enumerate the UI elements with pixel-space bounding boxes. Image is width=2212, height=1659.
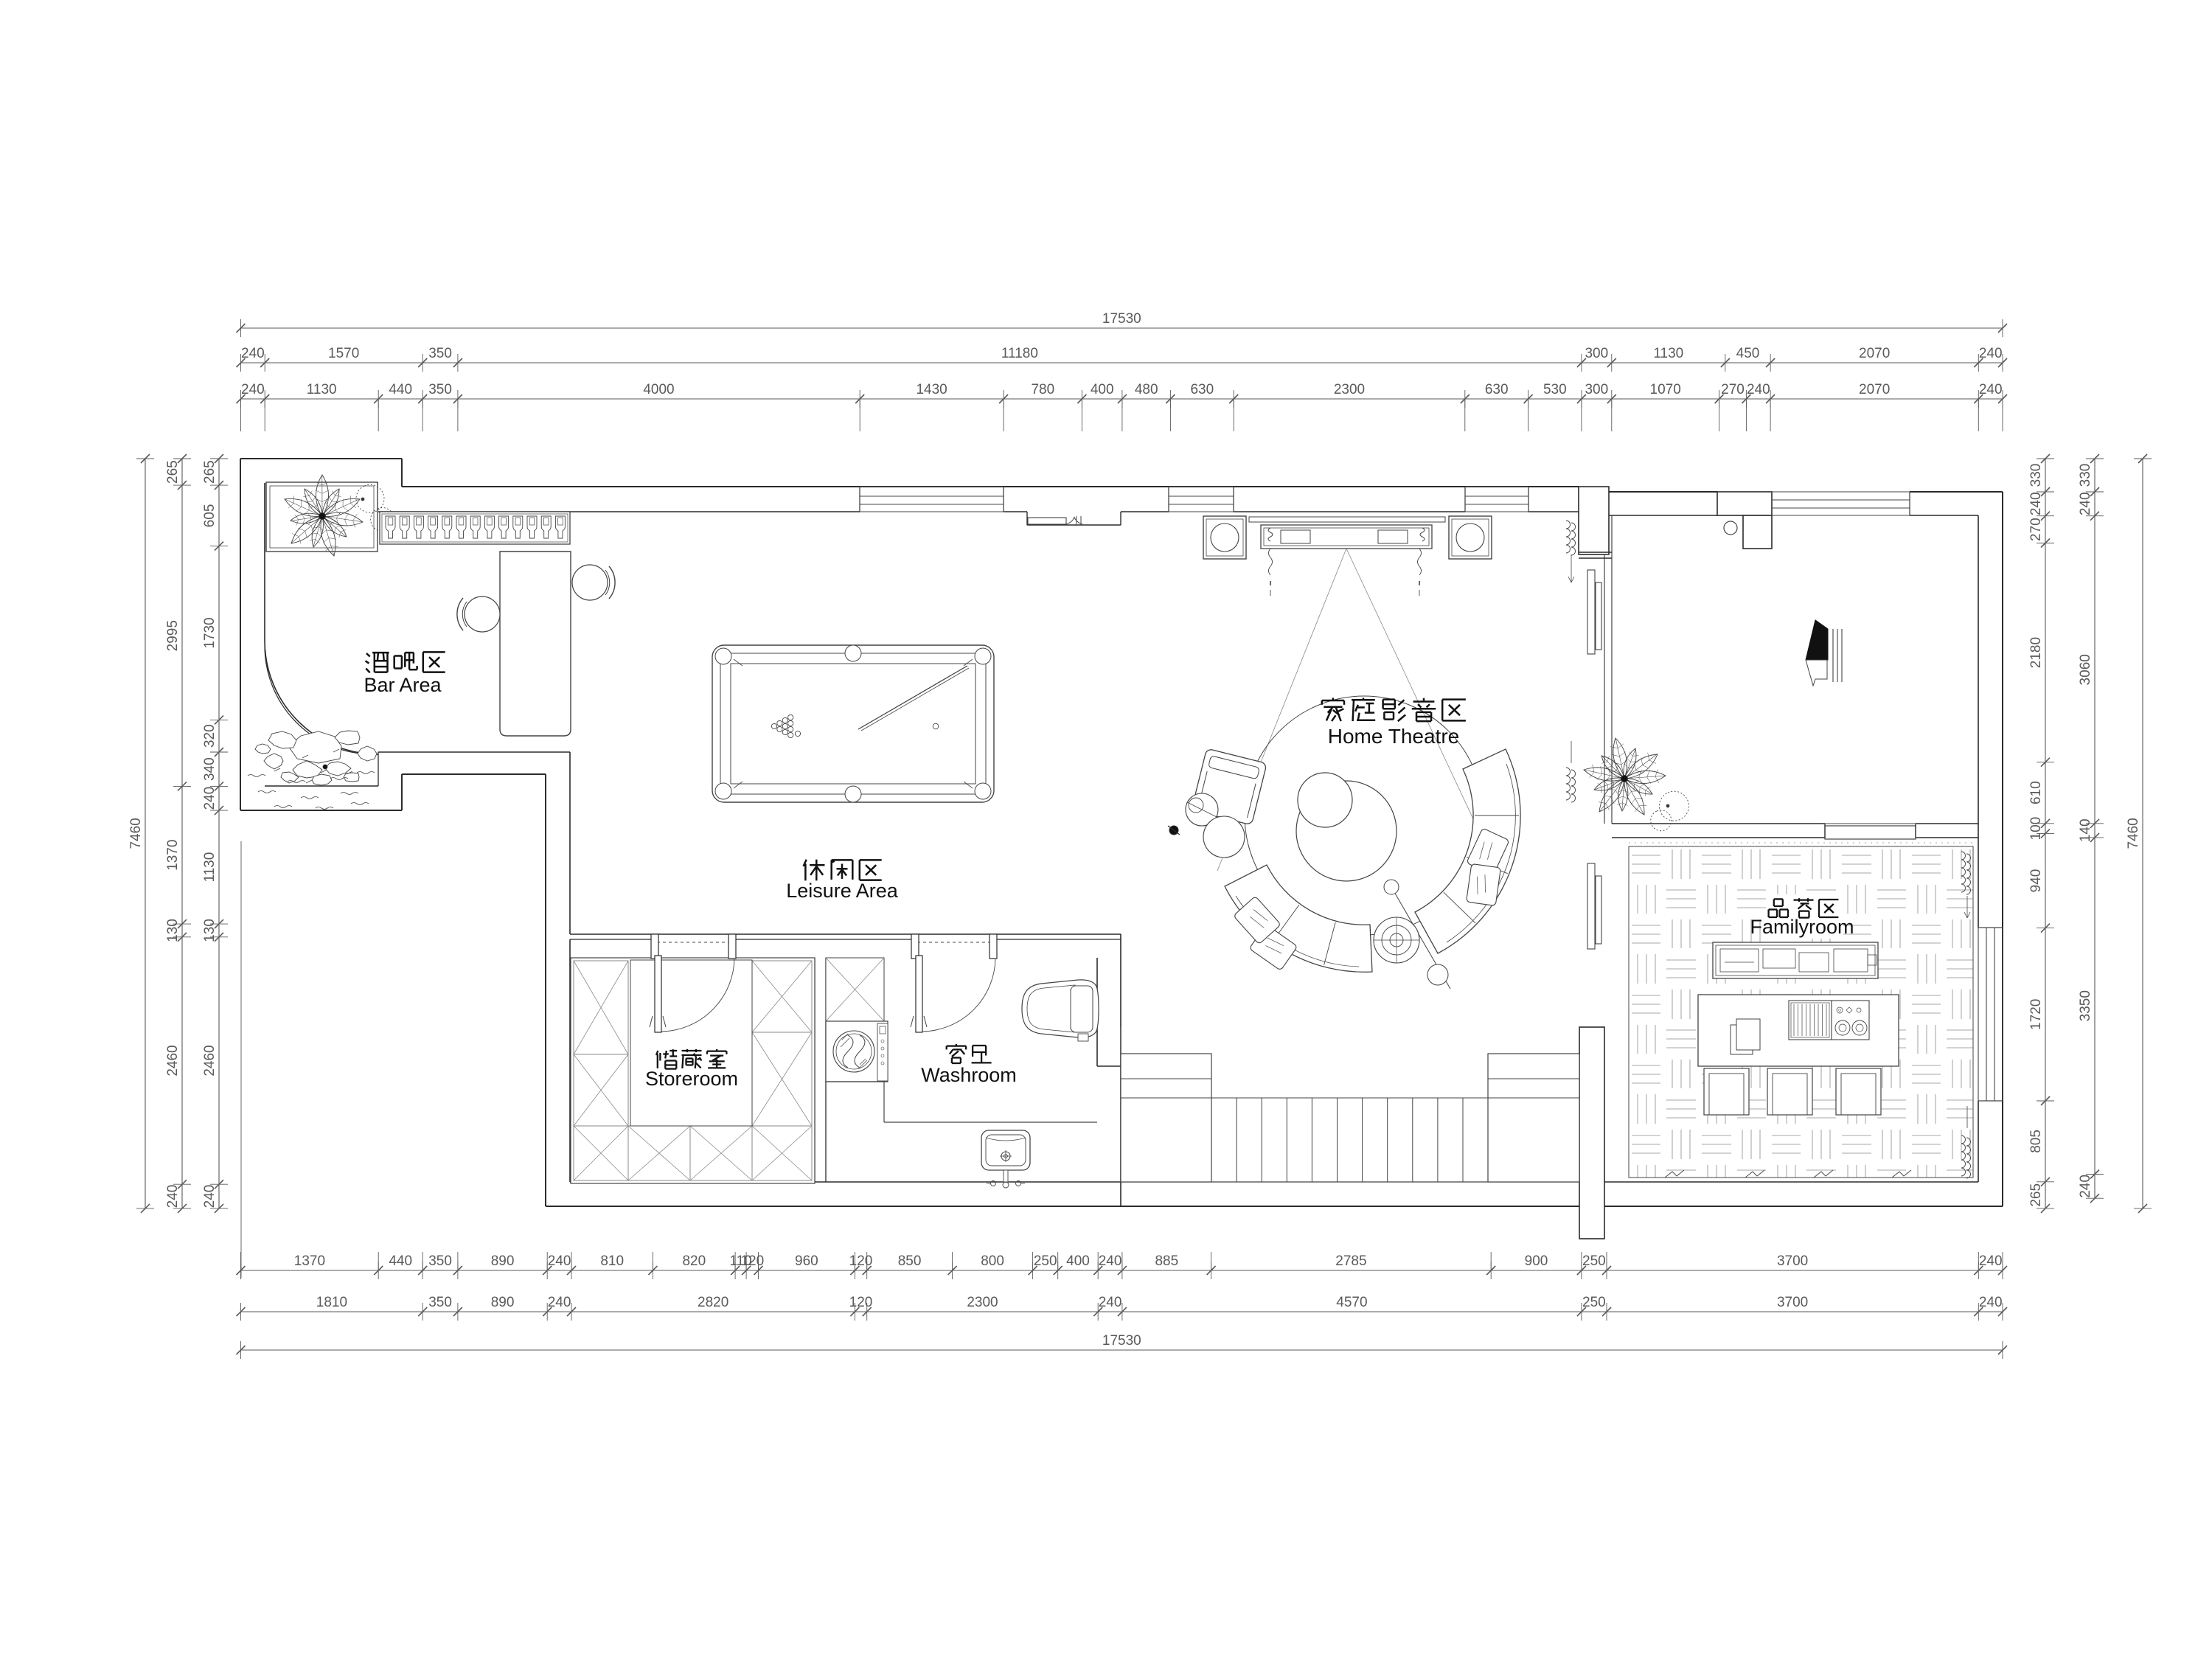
svg-text:240: 240	[1979, 382, 2003, 397]
svg-text:120: 120	[849, 1295, 873, 1310]
svg-text:Familyroom: Familyroom	[1750, 916, 1854, 938]
svg-text:350: 350	[428, 1295, 452, 1310]
svg-text:1810: 1810	[316, 1295, 347, 1310]
svg-text:240: 240	[2028, 492, 2044, 515]
svg-text:890: 890	[491, 1253, 515, 1269]
svg-text:270: 270	[1721, 382, 1745, 397]
svg-text:300: 300	[1585, 346, 1608, 361]
svg-text:890: 890	[491, 1295, 515, 1310]
svg-text:4570: 4570	[1336, 1295, 1367, 1310]
svg-text:240: 240	[548, 1295, 571, 1310]
svg-text:450: 450	[1736, 346, 1760, 361]
svg-text:Storeroom: Storeroom	[645, 1068, 738, 1090]
svg-text:1720: 1720	[2028, 999, 2044, 1030]
svg-text:120: 120	[849, 1253, 873, 1269]
svg-text:2070: 2070	[1859, 346, 1890, 361]
svg-text:240: 240	[241, 382, 265, 397]
svg-text:240: 240	[202, 1185, 218, 1208]
svg-text:2785: 2785	[1335, 1253, 1366, 1269]
svg-text:240: 240	[1979, 1253, 2003, 1269]
svg-text:1130: 1130	[307, 382, 337, 397]
svg-text:630: 630	[1190, 382, 1214, 397]
svg-text:820: 820	[682, 1253, 706, 1269]
svg-text:4000: 4000	[643, 382, 674, 397]
svg-text:530: 530	[1543, 382, 1567, 397]
svg-text:240: 240	[1979, 1295, 2003, 1310]
svg-text:350: 350	[428, 346, 452, 361]
svg-text:2995: 2995	[165, 620, 181, 651]
svg-text:340: 340	[202, 757, 218, 781]
svg-text:610: 610	[2028, 781, 2044, 804]
svg-text:1730: 1730	[202, 617, 218, 648]
svg-text:240: 240	[1747, 382, 1770, 397]
svg-text:250: 250	[1582, 1295, 1606, 1310]
svg-text:605: 605	[202, 504, 218, 528]
svg-text:270: 270	[2028, 518, 2044, 541]
svg-text:300: 300	[1585, 382, 1608, 397]
svg-text:7460: 7460	[2126, 818, 2141, 849]
svg-text:2460: 2460	[165, 1045, 181, 1076]
svg-text:630: 630	[1485, 382, 1509, 397]
svg-text:240: 240	[1099, 1295, 1122, 1310]
svg-text:480: 480	[1135, 382, 1158, 397]
svg-text:1370: 1370	[165, 840, 181, 871]
svg-text:940: 940	[2028, 869, 2044, 893]
svg-text:3060: 3060	[2078, 654, 2093, 685]
svg-text:240: 240	[2078, 492, 2093, 515]
svg-text:Leisure Area: Leisure Area	[786, 880, 899, 902]
svg-text:320: 320	[202, 724, 218, 748]
svg-text:330: 330	[2078, 464, 2093, 487]
svg-text:100: 100	[2028, 817, 2044, 841]
svg-text:2180: 2180	[2028, 637, 2044, 668]
svg-text:240: 240	[241, 346, 265, 361]
svg-text:Home Theatre: Home Theatre	[1328, 725, 1459, 748]
svg-text:1130: 1130	[1653, 346, 1683, 361]
svg-text:250: 250	[1034, 1253, 1057, 1269]
svg-text:885: 885	[1155, 1253, 1178, 1269]
svg-text:3700: 3700	[1777, 1253, 1808, 1269]
svg-text:140: 140	[2078, 818, 2093, 842]
svg-text:1430: 1430	[916, 382, 947, 397]
svg-text:440: 440	[389, 382, 412, 397]
svg-text:400: 400	[1091, 382, 1114, 397]
svg-text:2300: 2300	[967, 1295, 998, 1310]
svg-text:265: 265	[2028, 1183, 2044, 1207]
svg-text:1130: 1130	[202, 852, 218, 883]
svg-text:11180: 11180	[1001, 346, 1038, 361]
svg-text:850: 850	[898, 1253, 922, 1269]
svg-text:2070: 2070	[1859, 382, 1890, 397]
svg-text:265: 265	[165, 460, 181, 484]
svg-text:1070: 1070	[1650, 382, 1681, 397]
svg-text:265: 265	[202, 460, 218, 484]
svg-text:3350: 3350	[2078, 990, 2093, 1021]
svg-text:7460: 7460	[128, 818, 144, 849]
svg-text:Bar Area: Bar Area	[364, 674, 442, 696]
svg-text:780: 780	[1031, 382, 1054, 397]
svg-text:240: 240	[202, 787, 218, 810]
svg-text:350: 350	[428, 1253, 452, 1269]
svg-text:330: 330	[2028, 464, 2044, 487]
svg-text:400: 400	[1066, 1253, 1090, 1269]
svg-text:240: 240	[1979, 346, 2003, 361]
svg-text:1370: 1370	[294, 1253, 325, 1269]
svg-text:2820: 2820	[698, 1295, 728, 1310]
svg-text:130: 130	[202, 919, 218, 942]
svg-text:Washroom: Washroom	[921, 1064, 1017, 1086]
svg-text:240: 240	[165, 1185, 181, 1208]
svg-text:17530: 17530	[1102, 311, 1141, 327]
svg-text:120: 120	[740, 1253, 764, 1269]
svg-text:17530: 17530	[1102, 1333, 1141, 1349]
svg-text:1570: 1570	[328, 346, 359, 361]
svg-text:810: 810	[600, 1253, 624, 1269]
svg-text:960: 960	[795, 1253, 818, 1269]
svg-text:2300: 2300	[1334, 382, 1365, 397]
svg-text:240: 240	[1099, 1253, 1122, 1269]
svg-text:805: 805	[2028, 1130, 2044, 1153]
svg-text:240: 240	[548, 1253, 571, 1269]
svg-text:3700: 3700	[1777, 1295, 1808, 1310]
svg-text:800: 800	[981, 1253, 1004, 1269]
svg-text:900: 900	[1525, 1253, 1548, 1269]
svg-text:240: 240	[2078, 1175, 2093, 1198]
svg-text:440: 440	[389, 1253, 412, 1269]
svg-text:350: 350	[428, 382, 452, 397]
svg-text:130: 130	[165, 919, 181, 942]
svg-text:2460: 2460	[202, 1045, 218, 1076]
svg-text:250: 250	[1582, 1253, 1606, 1269]
